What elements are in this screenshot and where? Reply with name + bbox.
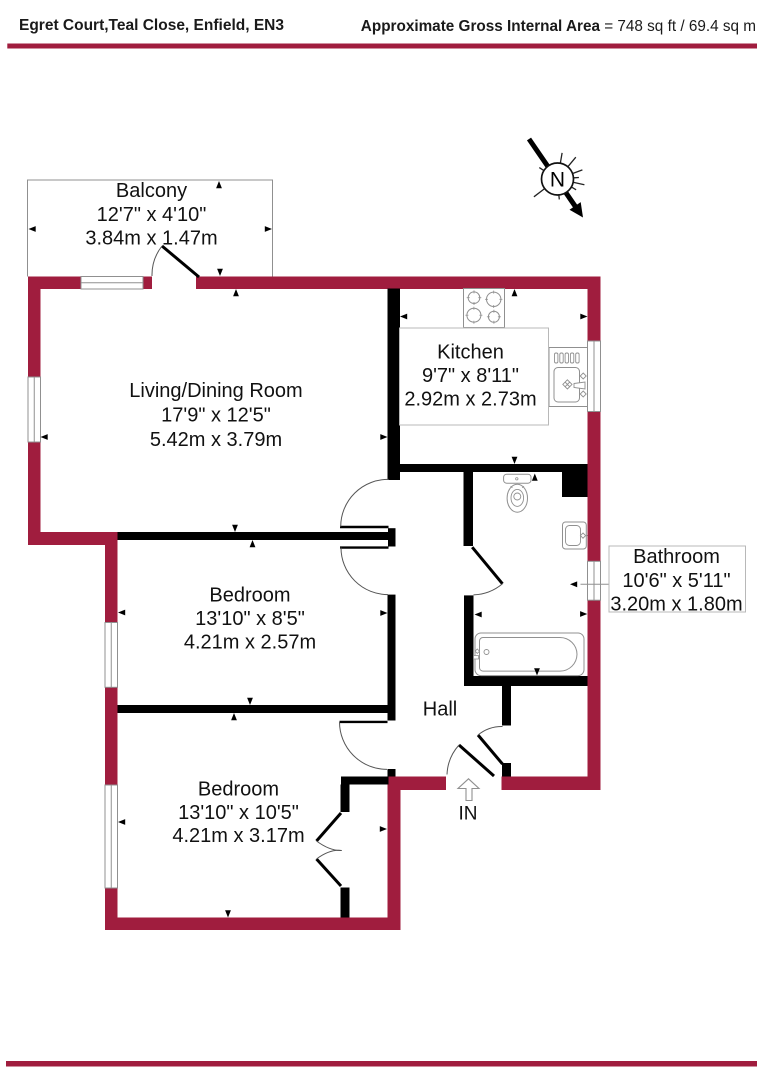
svg-text:3.84m x 1.47m: 3.84m x 1.47m (85, 227, 217, 249)
svg-text:3.20m x 1.80m: 3.20m x 1.80m (610, 593, 742, 615)
svg-text:IN: IN (459, 804, 478, 825)
svg-text:Living/Dining Room: Living/Dining Room (129, 380, 302, 402)
svg-text:Hall: Hall (423, 699, 457, 721)
svg-text:9'7" x 8'11": 9'7" x 8'11" (422, 365, 519, 387)
svg-text:17'9" x 12'5": 17'9" x 12'5" (161, 405, 271, 427)
svg-text:N: N (550, 169, 565, 192)
svg-text:4.21m x 2.57m: 4.21m x 2.57m (184, 632, 316, 654)
svg-text:Bedroom: Bedroom (198, 779, 279, 801)
svg-text:Egret Court,Teal Close, Enfiel: Egret Court,Teal Close, Enfield, EN3 (19, 17, 284, 34)
svg-text:4.21m x 3.17m: 4.21m x 3.17m (172, 825, 304, 847)
svg-text:Kitchen: Kitchen (437, 342, 504, 364)
svg-text:13'10" x 8'5": 13'10" x 8'5" (195, 608, 305, 630)
svg-text:Bedroom: Bedroom (209, 585, 290, 607)
svg-text:Bathroom: Bathroom (633, 546, 720, 568)
svg-text:5.42m x 3.79m: 5.42m x 3.79m (150, 429, 282, 451)
svg-text:Balcony: Balcony (116, 180, 187, 202)
svg-text:13'10" x 10'5": 13'10" x 10'5" (178, 802, 299, 824)
svg-text:Approximate Gross Internal Are: Approximate Gross Internal Area = 748 sq… (361, 18, 756, 35)
svg-text:10'6" x 5'11": 10'6" x 5'11" (622, 570, 730, 592)
svg-text:2.92m x 2.73m: 2.92m x 2.73m (404, 389, 536, 411)
svg-text:12'7" x 4'10": 12'7" x 4'10" (97, 204, 207, 226)
